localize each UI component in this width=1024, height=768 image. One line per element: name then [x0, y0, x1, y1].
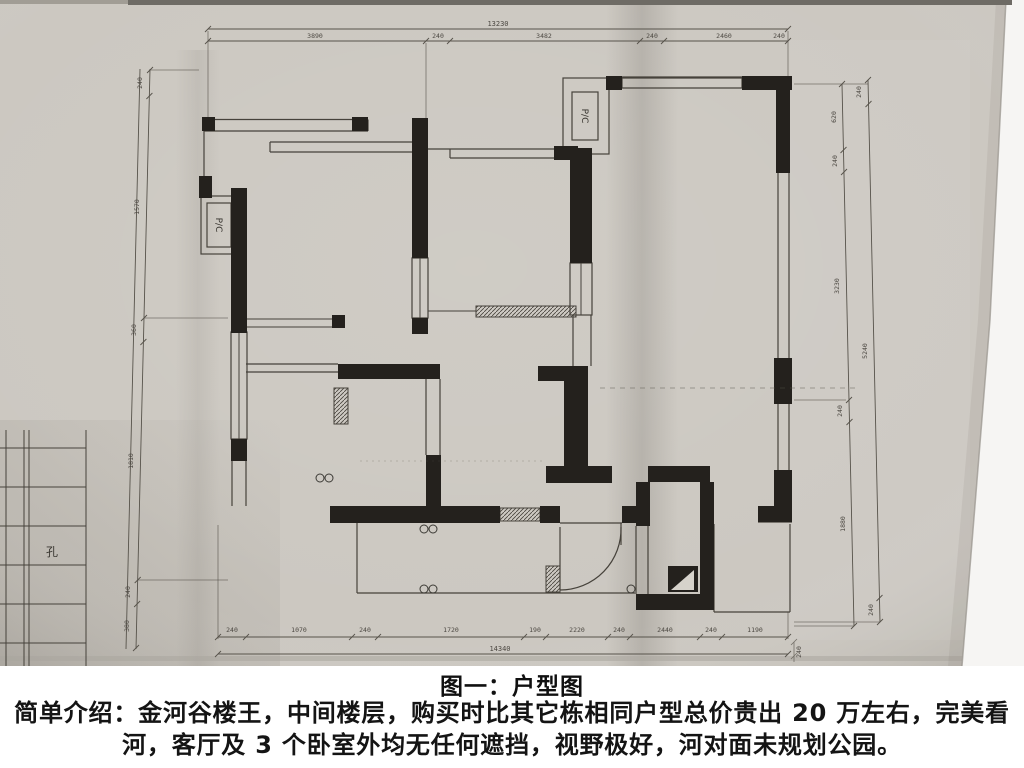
dim-label: 240 [646, 32, 658, 40]
figure-caption: 图一：户型图 [0, 667, 1024, 701]
dim-label: 240 [136, 77, 144, 89]
dim-label: 240 [855, 86, 863, 98]
screenshot: 孔 13230 3890 240 3482 240 2460 240 240 [0, 0, 1024, 768]
dim-label: 3230 [833, 278, 841, 294]
dim-label: 240 [773, 32, 785, 40]
intro-text-line-2: 河，客厅及 3 个卧室外均无任何遮挡，视野极好，河对面未规划公园。 [0, 729, 1024, 761]
dim-label: 240 [831, 155, 839, 167]
floorplan-drawing: 孔 13230 3890 240 3482 240 2460 240 240 [0, 0, 1024, 666]
dim-label: 240 [124, 586, 132, 598]
floorplan-photo: 孔 13230 3890 240 3482 240 2460 240 240 [0, 0, 1024, 666]
ac-unit-label-2: P/C [579, 109, 589, 124]
dim-label: 360 [130, 324, 138, 336]
dim-total-top: 13230 [487, 20, 508, 28]
dim-label: 2460 [716, 32, 732, 40]
dim-label: 3890 [307, 32, 323, 40]
dim-label: 240 [359, 626, 371, 634]
dim-label: 1570 [133, 199, 141, 215]
flue-symbol [668, 566, 698, 592]
intro-paragraph: 简单介绍：金河谷楼王，中间楼层，购买时比其它栋相同户型总价贵出 20 万左右，完… [0, 697, 1024, 761]
dim-label: 240 [613, 626, 625, 634]
dim-label: 1070 [291, 626, 307, 634]
dim-label: 240 [705, 626, 717, 634]
dim-label: 1190 [747, 626, 763, 634]
dim-total-bottom: 14340 [489, 645, 510, 653]
dim-label: 240 [226, 626, 238, 634]
dim-label: 2440 [657, 626, 673, 634]
dim-label: 1720 [443, 626, 459, 634]
dim-label: 1810 [127, 453, 135, 469]
paper-background [0, 0, 1024, 666]
dim-label: 620 [830, 111, 838, 123]
dim-label: 2220 [569, 626, 585, 634]
dim-label: 240 [795, 646, 803, 658]
dim-label: 190 [529, 626, 541, 634]
intro-text-line-1: 简单介绍：金河谷楼王，中间楼层，购买时比其它栋相同户型总价贵出 20 万左右，完… [0, 697, 1024, 729]
dim-label: 240 [867, 604, 875, 616]
dim-label: 240 [836, 405, 844, 417]
dim-label: 5240 [861, 343, 869, 359]
dim-label: 240 [432, 32, 444, 40]
dim-label: 3482 [536, 32, 552, 40]
dim-label: 1880 [839, 516, 847, 532]
ac-unit-label-1: P/C [213, 218, 223, 233]
dim-label: 380 [123, 620, 131, 632]
table-cell-label: 孔 [46, 545, 58, 559]
